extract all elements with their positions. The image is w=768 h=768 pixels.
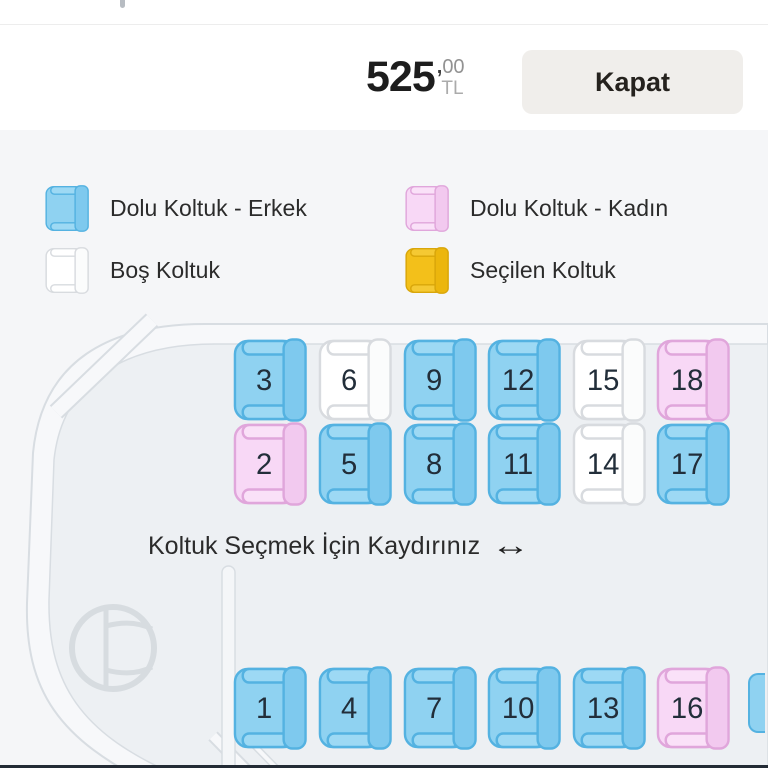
price-fraction: ,00 TL <box>437 57 465 98</box>
svg-text:7: 7 <box>426 692 442 725</box>
price-decimals: 00 <box>442 56 464 78</box>
seat-6[interactable]: 6 <box>318 338 392 422</box>
svg-text:1: 1 <box>256 692 272 725</box>
svg-text:3: 3 <box>256 364 272 397</box>
seat-12: 12 <box>487 338 561 422</box>
seat-7: 7 <box>403 666 477 750</box>
seat-11: 11 <box>487 422 561 506</box>
frame-border-left <box>0 0 5 768</box>
svg-text:2: 2 <box>256 448 272 481</box>
header-divider <box>0 24 768 25</box>
svg-text:5: 5 <box>341 448 357 481</box>
seat-partial <box>748 673 765 733</box>
seat-3: 3 <box>233 338 307 422</box>
svg-text:18: 18 <box>671 364 703 397</box>
seat-1: 1 <box>233 666 307 750</box>
frame-border-right <box>764 0 768 768</box>
price-amount: 525 <box>366 56 435 99</box>
seat-2: 2 <box>233 422 307 506</box>
svg-text:6: 6 <box>341 364 357 397</box>
svg-text:4: 4 <box>341 692 357 725</box>
svg-text:9: 9 <box>426 364 442 397</box>
frame-border-top <box>0 0 768 4</box>
swipe-hint-text: Koltuk Seçmek İçin Kaydırınız <box>148 532 480 561</box>
svg-text:15: 15 <box>587 364 619 397</box>
svg-text:11: 11 <box>503 448 533 481</box>
svg-text:12: 12 <box>502 364 534 397</box>
header-bar: 525 ,00 TL Kapat <box>0 0 768 130</box>
svg-text:14: 14 <box>587 448 619 481</box>
seat-9: 9 <box>403 338 477 422</box>
close-button[interactable]: Kapat <box>522 50 743 114</box>
seat-18: 18 <box>656 338 730 422</box>
total-price: 525 ,00 TL <box>366 56 465 99</box>
svg-text:10: 10 <box>502 692 534 725</box>
seat-4: 4 <box>318 666 392 750</box>
price-currency: TL <box>441 79 463 98</box>
seat-5: 5 <box>318 422 392 506</box>
seat-14[interactable]: 14 <box>572 422 646 506</box>
seat-8: 8 <box>403 422 477 506</box>
seat-17: 17 <box>656 422 730 506</box>
horizontal-swipe-arrow-icon: ↔ <box>491 530 530 563</box>
svg-text:8: 8 <box>426 448 442 481</box>
seat-16: 16 <box>656 666 730 750</box>
svg-text:17: 17 <box>671 448 703 481</box>
swipe-hint: Koltuk Seçmek İçin Kaydırınız ↔ <box>148 530 525 563</box>
svg-text:16: 16 <box>671 692 703 725</box>
seat-15[interactable]: 15 <box>572 338 646 422</box>
seat-selection-sheet: 525 ,00 TL Kapat Dolu Koltuk - Erkek <box>0 0 768 768</box>
seat-10: 10 <box>487 666 561 750</box>
svg-text:13: 13 <box>587 692 619 725</box>
seat-13: 13 <box>572 666 646 750</box>
